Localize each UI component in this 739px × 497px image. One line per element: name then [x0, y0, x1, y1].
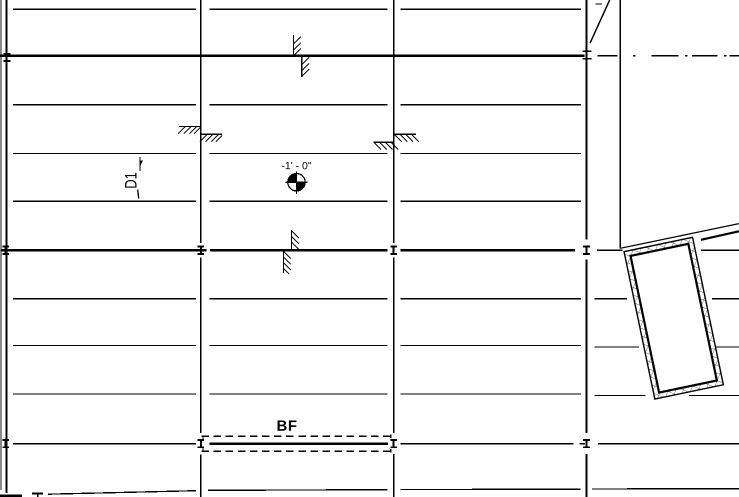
- svg-text:BF: BF: [276, 418, 297, 435]
- svg-text:D1: D1: [123, 172, 141, 189]
- svg-text:-1' - 0": -1' - 0": [281, 160, 312, 172]
